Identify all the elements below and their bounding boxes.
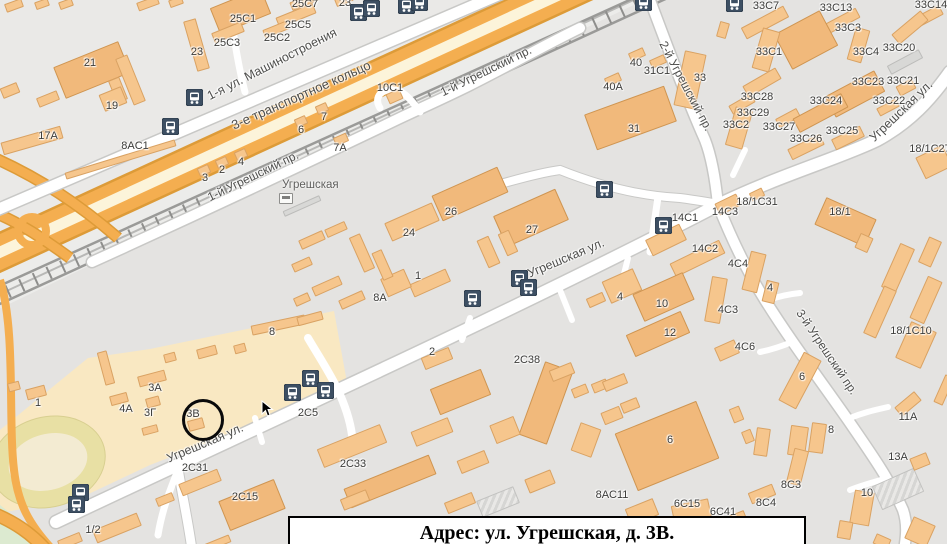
building-label: 33C3 xyxy=(835,22,861,34)
building-label: 25C2 xyxy=(264,32,290,44)
building-label: 4A xyxy=(119,403,132,415)
building-label: 8AC1 xyxy=(121,140,149,152)
highlight-circle xyxy=(182,399,224,441)
building-label: 10C1 xyxy=(377,82,403,94)
building-label: 12 xyxy=(664,327,676,339)
building-label: 40A xyxy=(603,81,623,93)
bus-stop-icon[interactable] xyxy=(68,496,85,513)
building-label: 6 xyxy=(799,371,805,383)
address-text: Адрес: ул. Угрешская, д. 3В. xyxy=(420,522,674,544)
bus-stop-icon[interactable] xyxy=(655,217,672,234)
building-label: 2 xyxy=(429,346,435,358)
building-label: 27 xyxy=(526,224,538,236)
building-label: 2C33 xyxy=(340,458,366,470)
bus-stop-icon[interactable] xyxy=(162,118,179,135)
bus-stop-icon[interactable] xyxy=(317,382,334,399)
building-label: 25C5 xyxy=(285,19,311,31)
building-label: 8AC11 xyxy=(596,489,629,501)
building-label: 33C25 xyxy=(826,125,858,137)
building-label: 33C13 xyxy=(820,2,852,14)
building-label: 18/1C31 xyxy=(736,196,778,208)
building-label: 14C1 xyxy=(672,212,698,224)
bus-stop-icon[interactable] xyxy=(284,384,301,401)
building-label: 31 xyxy=(628,123,640,135)
building-label: 13A xyxy=(888,451,908,463)
building-label: 10 xyxy=(861,487,873,499)
bus-stop-icon[interactable] xyxy=(363,0,380,17)
building-label: 33C28 xyxy=(741,91,773,103)
building-label: 33C29 xyxy=(737,107,769,119)
building-label: 25C3 xyxy=(214,37,240,49)
building-label: 4 xyxy=(238,156,244,168)
building-label: 40 xyxy=(630,57,642,69)
bus-stop-icon[interactable] xyxy=(520,279,537,296)
building-label: 2 xyxy=(219,164,225,176)
bus-stop-icon[interactable] xyxy=(186,89,203,106)
building-label: 26 xyxy=(445,206,457,218)
building-label: 4C6 xyxy=(735,341,755,353)
building-label: 11A xyxy=(899,411,918,423)
building-label: 31C1 xyxy=(644,65,670,77)
building-label: 8 xyxy=(828,424,834,436)
building-label: 1 xyxy=(415,270,421,282)
building-label: 14C2 xyxy=(692,243,718,255)
building-label: 33C23 xyxy=(852,76,884,88)
building-label: 4 xyxy=(767,282,773,294)
building-label: 33C20 xyxy=(883,42,915,54)
building-label: 2C31 xyxy=(182,462,208,474)
building-label: 14C3 xyxy=(712,206,738,218)
building-label: 1 xyxy=(35,397,41,409)
building-label: 8C3 xyxy=(781,479,801,491)
bus-stop-icon[interactable] xyxy=(596,181,613,198)
bus-stop-icon[interactable] xyxy=(635,0,652,11)
building-label: 2C5 xyxy=(298,407,318,419)
building-label: 33 xyxy=(694,72,706,84)
building-label: 33C21 xyxy=(887,75,919,87)
building-label: 3 xyxy=(202,172,208,184)
building-label: 3A xyxy=(148,382,161,394)
railway-station-icon[interactable] xyxy=(279,193,293,204)
building-label: 8C4 xyxy=(756,497,776,509)
map-canvas[interactable]: Угрешская 211917A8AC12325C125C325C525C22… xyxy=(0,0,947,544)
building-label: 24 xyxy=(403,227,415,239)
bus-stop-icon[interactable] xyxy=(411,0,428,11)
building-label: 21 xyxy=(84,57,96,69)
building-label: 4C4 xyxy=(728,258,748,270)
station-label: Угрешская xyxy=(282,179,339,191)
building-label: 17A xyxy=(38,130,58,142)
building-label: 10 xyxy=(656,298,668,310)
building-label: 4 xyxy=(617,291,623,303)
building-label: 1/2 xyxy=(85,524,100,536)
building-label: 7A xyxy=(333,142,346,154)
mouse-cursor xyxy=(260,400,274,418)
building-label: 19 xyxy=(106,100,118,112)
building-label: 33C14 xyxy=(915,0,947,11)
building-label: 7 xyxy=(321,111,327,123)
building-label: 33C4 xyxy=(853,46,879,58)
building-label: 33C26 xyxy=(790,133,822,145)
bus-stop-icon[interactable] xyxy=(464,290,481,307)
building-label: 2C15 xyxy=(232,491,258,503)
building-label: 18/1C27 xyxy=(909,143,947,155)
building-label: 18/1C10 xyxy=(890,325,932,337)
building-label: 33C22 xyxy=(873,95,905,107)
building-label: 4C3 xyxy=(718,304,738,316)
building-label: 6 xyxy=(298,124,304,136)
building-label: 33C1 xyxy=(756,46,782,58)
building-label: 6 xyxy=(667,434,673,446)
building-label: 25C7 xyxy=(292,0,318,10)
building-label: 8A xyxy=(373,292,386,304)
building-label: 2C38 xyxy=(514,354,540,366)
building-label: 25C1 xyxy=(230,13,256,25)
building-label: 18/1 xyxy=(829,206,850,218)
building-label: 33C27 xyxy=(763,121,795,133)
building-label: 6C15 xyxy=(674,498,700,510)
building-label: 33C24 xyxy=(810,95,842,107)
building-label: 23 xyxy=(191,46,203,58)
building-label: 8 xyxy=(269,326,275,338)
bus-stop-icon[interactable] xyxy=(726,0,743,12)
building-label: 33C7 xyxy=(753,0,779,12)
building-label: 3Г xyxy=(144,407,156,419)
building-label: 33C2 xyxy=(723,119,749,131)
address-banner: Адрес: ул. Угрешская, д. 3В. xyxy=(288,516,806,544)
